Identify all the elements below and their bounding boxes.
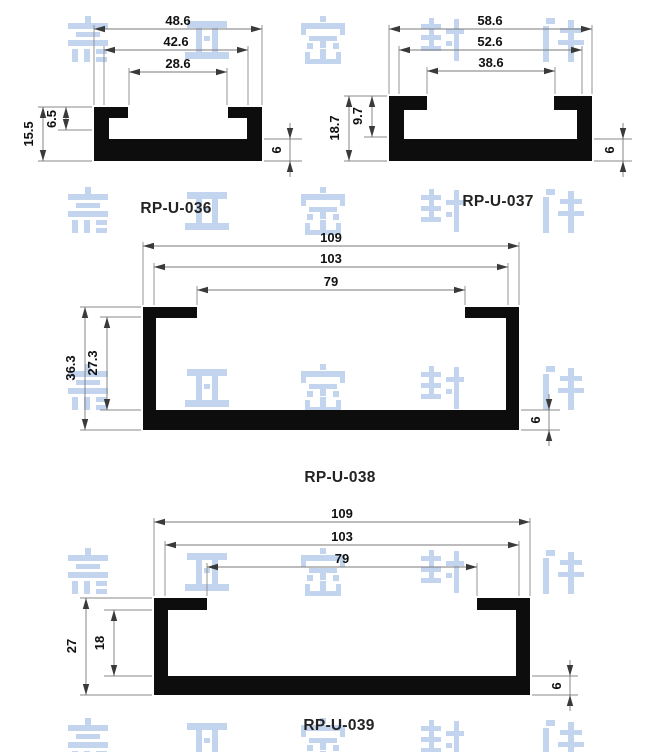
dim-label-outer-width: 58.6 (477, 13, 502, 28)
channel-cross-section (389, 96, 592, 161)
dim-label-total-height: 36.3 (63, 355, 78, 380)
part-number-label: RP-U-038 (304, 469, 375, 486)
dim-label-outer-width: 109 (331, 506, 353, 521)
dim-label-outer-width: 109 (320, 230, 342, 245)
dim-label-inner-width: 103 (331, 529, 353, 544)
dim-label-inner-width: 103 (320, 251, 342, 266)
part-number-label: RP-U-039 (303, 717, 374, 734)
dim-label-secondary-height: 18 (92, 636, 107, 650)
dim-label-secondary-height: 6.5 (44, 110, 59, 128)
dim-label-opening-width: 38.6 (478, 55, 503, 70)
dim-label-opening-width: 79 (335, 551, 349, 566)
profile-drawings: 48.6 42.6 28.6 15.5 6.5 6 RP-U-036 (0, 0, 666, 752)
dim-label-inner-width: 42.6 (163, 34, 188, 49)
part-number-label: RP-U-036 (140, 200, 211, 217)
profile-rp-u-037: 58.6 52.6 38.6 18.7 9.7 6 RP-U-037 (327, 13, 632, 210)
dim-label-base-thickness: 6 (549, 682, 564, 689)
dim-label-outer-width: 48.6 (165, 13, 190, 28)
dim-label-total-height: 18.7 (327, 115, 342, 140)
part-number-label: RP-U-037 (462, 193, 533, 210)
dim-label-opening-width: 28.6 (165, 56, 190, 71)
dim-label-secondary-height: 27.3 (85, 350, 100, 375)
channel-cross-section (94, 107, 262, 161)
dim-label-base-thickness: 6 (528, 416, 543, 423)
profile-rp-u-038: 109 103 79 36.3 27.3 6 RP-U-038 (63, 230, 560, 486)
dim-label-total-height: 27 (64, 639, 79, 653)
dim-label-opening-width: 79 (324, 274, 338, 289)
dim-label-base-thickness: 6 (602, 146, 617, 153)
profile-rp-u-039: 109 103 79 27 18 6 RP-U-039 (64, 506, 578, 734)
dim-label-total-height: 15.5 (21, 121, 36, 146)
channel-cross-section (154, 598, 530, 695)
dim-label-base-thickness: 6 (269, 146, 284, 153)
channel-cross-section (143, 307, 519, 430)
dim-label-inner-width: 52.6 (477, 34, 502, 49)
drawing-sheet: 48.6 42.6 28.6 15.5 6.5 6 RP-U-036 (0, 0, 666, 752)
profile-rp-u-036: 48.6 42.6 28.6 15.5 6.5 6 RP-U-036 (21, 13, 302, 217)
dim-label-secondary-height: 9.7 (350, 107, 365, 125)
